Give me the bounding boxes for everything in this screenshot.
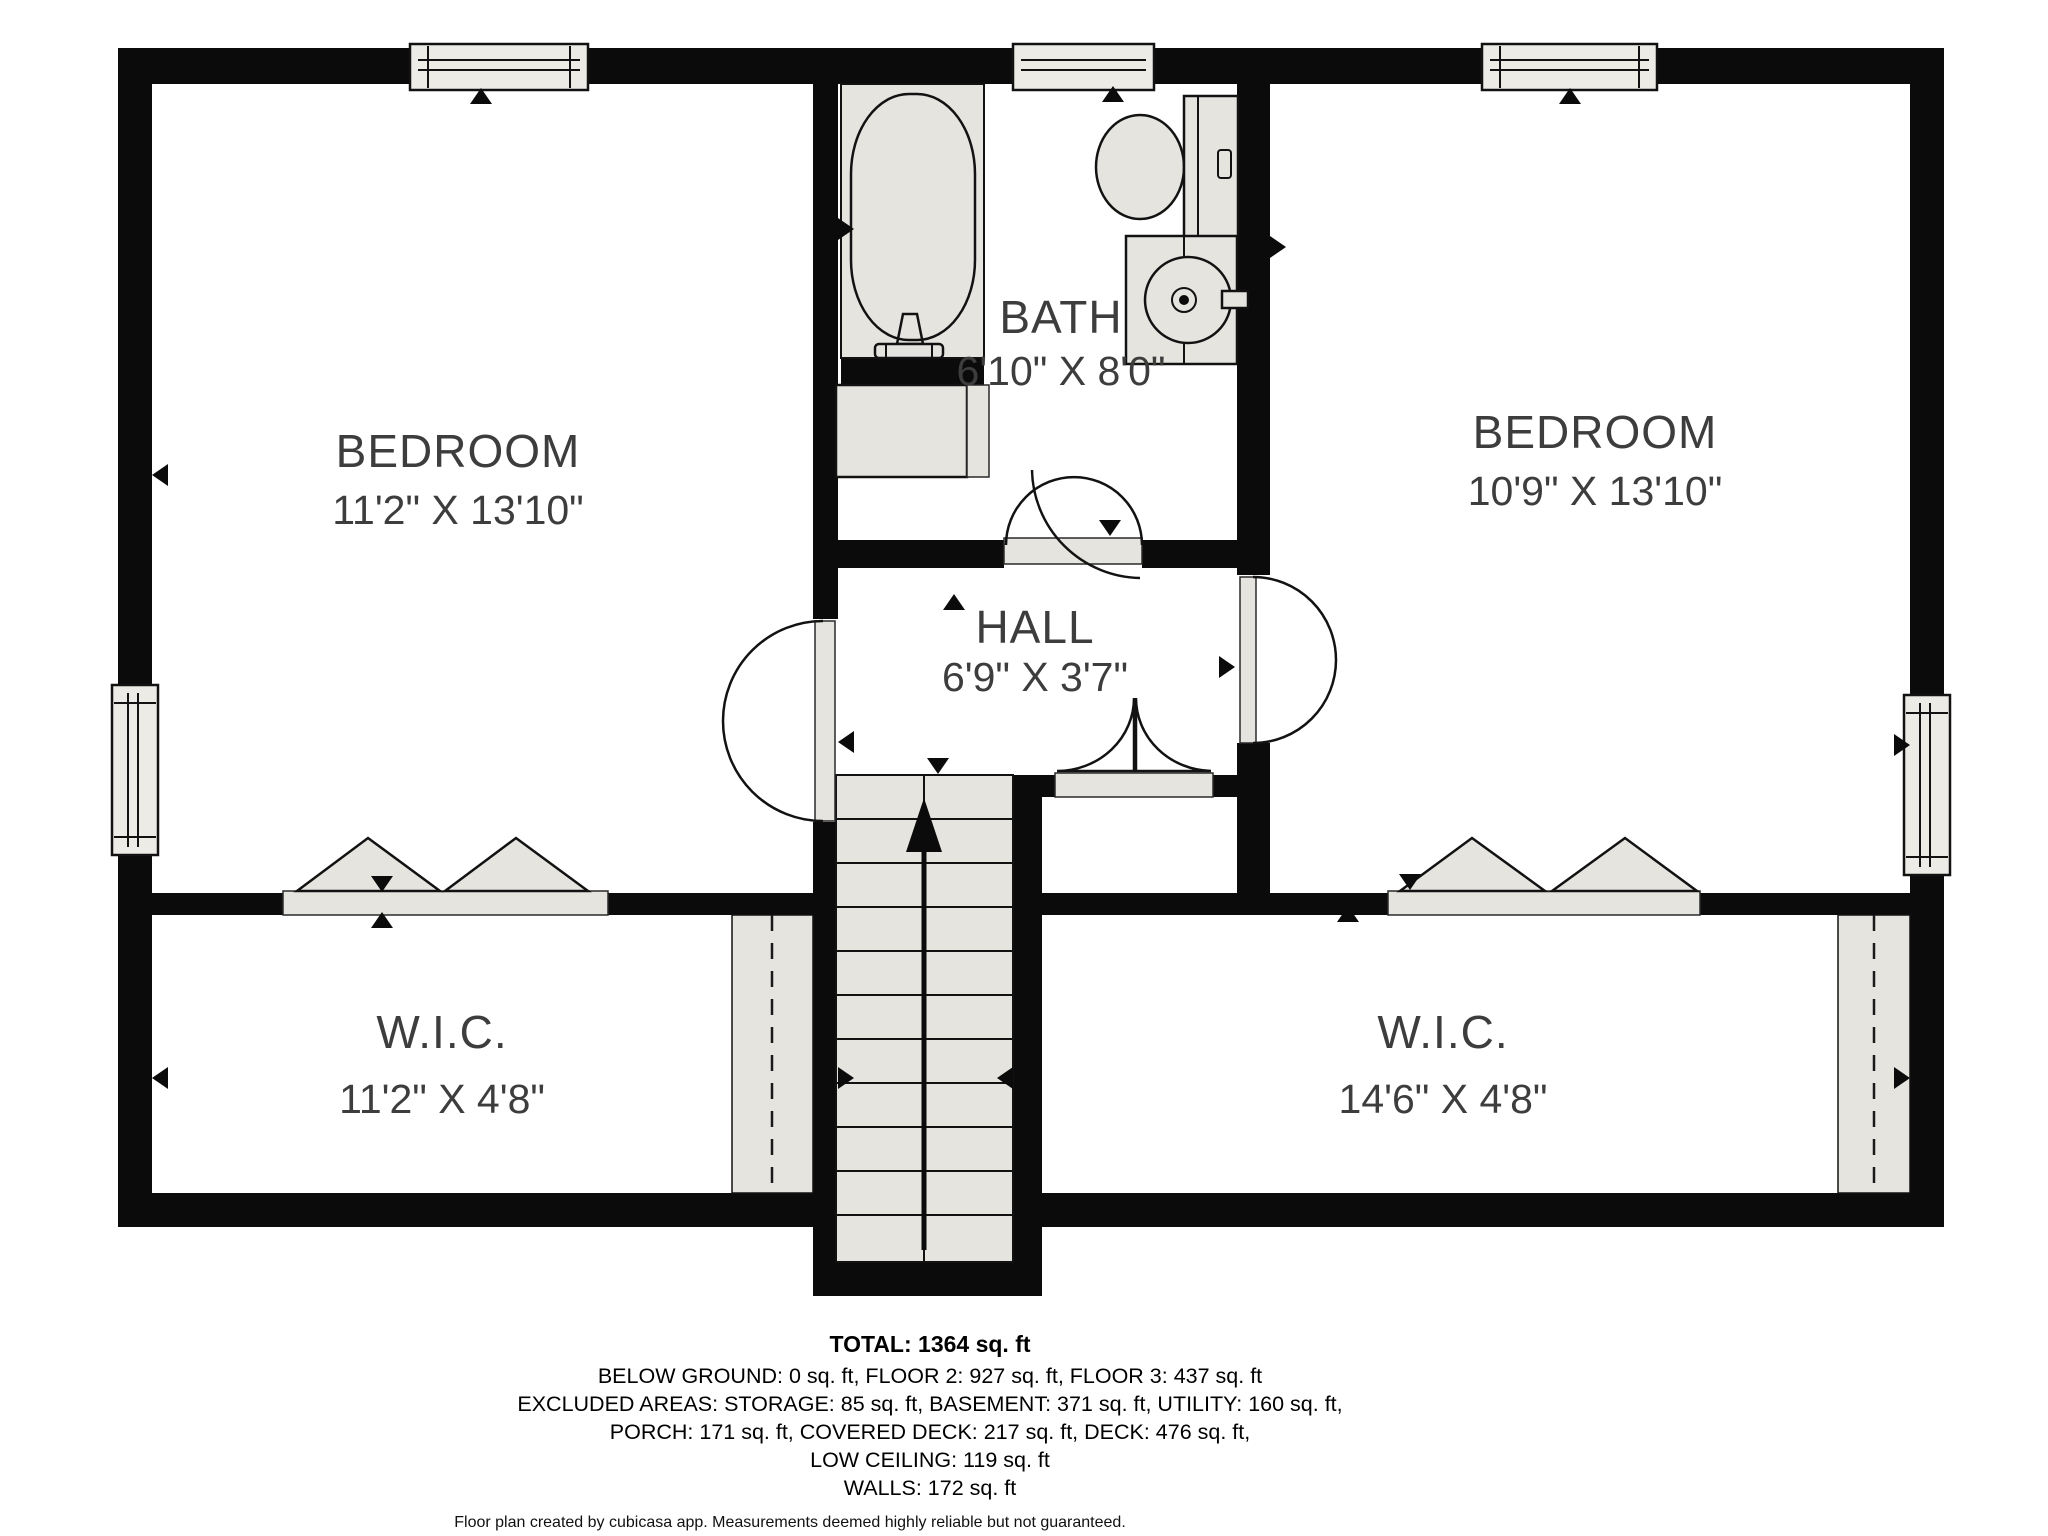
summary-total: TOTAL: 1364 sq. ft [829, 1331, 1030, 1357]
door-bedroom-right [1240, 577, 1336, 743]
wall-nook-top-right [1213, 775, 1237, 797]
wall-outer-bottom-left [118, 1193, 813, 1227]
room-label-wic-left: W.I.C. [376, 1006, 507, 1058]
wall-nook-top-left [1042, 775, 1055, 797]
bifold-threshold [283, 891, 608, 915]
summary-line-3: EXCLUDED AREAS: STORAGE: 85 sq. ft, BASE… [517, 1392, 1342, 1416]
low-ceiling-strip-right [1838, 915, 1910, 1193]
wall-outer-left [118, 48, 152, 1227]
bath-closet-icon [836, 385, 989, 477]
bath-fixtures [836, 84, 1248, 477]
direction-marker-icon [1099, 520, 1121, 536]
room-dims-bedroom-right: 10'9" X 13'10" [1468, 468, 1723, 514]
window-bath [1013, 44, 1154, 90]
direction-marker-icon [943, 594, 965, 610]
window-bedroom-left [410, 44, 588, 90]
wall-hall-right-lower [1237, 743, 1270, 915]
bifold-threshold [1388, 891, 1700, 915]
wall-bath-left-upper [813, 48, 838, 619]
wall-wic-left-band-b [608, 893, 813, 915]
app-attribution: Floor plan created by cubicasa app. Meas… [454, 1514, 1126, 1531]
staircase [836, 775, 1013, 1262]
door-threshold [1055, 773, 1213, 797]
direction-marker-icon [838, 731, 854, 753]
direction-marker-icon [1219, 656, 1235, 678]
door-leaf [1240, 577, 1256, 743]
wall-wic-right-band-a [1013, 893, 1388, 915]
room-label-bath: BATH [999, 291, 1122, 343]
wall-wic-left-band-a [152, 893, 283, 915]
room-dims-bedroom-left: 11'2" X 13'10" [332, 487, 583, 533]
bifold-doors-wic-right [1388, 838, 1700, 915]
room-label-hall: HALL [975, 601, 1094, 653]
direction-marker-icon [152, 1067, 168, 1089]
bathtub-icon [841, 84, 984, 358]
room-dims-bath: 6'10" X 8'0" [957, 348, 1166, 394]
wall-outer-bottom-right [1042, 1193, 1910, 1227]
summary-line-2: BELOW GROUND: 0 sq. ft, FLOOR 2: 927 sq.… [598, 1364, 1262, 1388]
room-dims-wic-right: 14'6" X 4'8" [1339, 1076, 1548, 1122]
wall-bath-right-upper [1237, 48, 1270, 575]
window-right-wall [1904, 695, 1950, 875]
low-ceiling-strip-left [732, 915, 813, 1193]
sink-vanity-icon [1126, 236, 1248, 364]
room-dims-wic-left: 11'2" X 4'8" [339, 1076, 545, 1122]
wall-outer-right [1910, 48, 1944, 1227]
wall-wic-right-band-b [1700, 893, 1910, 915]
door-bedroom-left [723, 621, 835, 821]
door-threshold [1004, 538, 1142, 564]
room-dims-hall: 6'9" X 3'7" [942, 654, 1128, 700]
direction-marker-icon [1270, 236, 1286, 258]
summary-block: TOTAL: 1364 sq. ft BELOW GROUND: 0 sq. f… [454, 1331, 1342, 1531]
bifold-doors-wic-left [283, 838, 608, 915]
door-leaf [815, 621, 835, 821]
wall-stair-bottom [813, 1262, 1042, 1296]
direction-marker-icon [152, 464, 168, 486]
double-door-hall-closet [1055, 698, 1213, 797]
window-bedroom-right [1482, 44, 1657, 90]
floor-plan-svg: BEDROOM 11'2" X 13'10" BATH 6'10" X 8'0"… [0, 0, 2048, 1536]
wall-hall-left-lower [813, 822, 838, 1296]
summary-line-5: LOW CEILING: 119 sq. ft [810, 1448, 1050, 1472]
room-label-wic-right: W.I.C. [1377, 1006, 1508, 1058]
floor-plan-page: BEDROOM 11'2" X 13'10" BATH 6'10" X 8'0"… [0, 0, 2048, 1536]
window-left-wall [112, 685, 158, 855]
wall-bath-bottom-left [838, 540, 1004, 568]
wall-stair-right [1013, 775, 1042, 1296]
room-label-bedroom-right: BEDROOM [1473, 406, 1718, 458]
summary-line-6: WALLS: 172 sq. ft [844, 1476, 1017, 1500]
wall-bath-bottom-right [1142, 540, 1237, 568]
toilet-icon [1096, 96, 1238, 238]
room-label-bedroom-left: BEDROOM [336, 425, 581, 477]
direction-marker-icon [927, 758, 949, 774]
door-bath [1004, 470, 1142, 578]
summary-line-4: PORCH: 171 sq. ft, COVERED DECK: 217 sq.… [610, 1420, 1250, 1444]
bath-closet-door-leaf [967, 385, 989, 477]
